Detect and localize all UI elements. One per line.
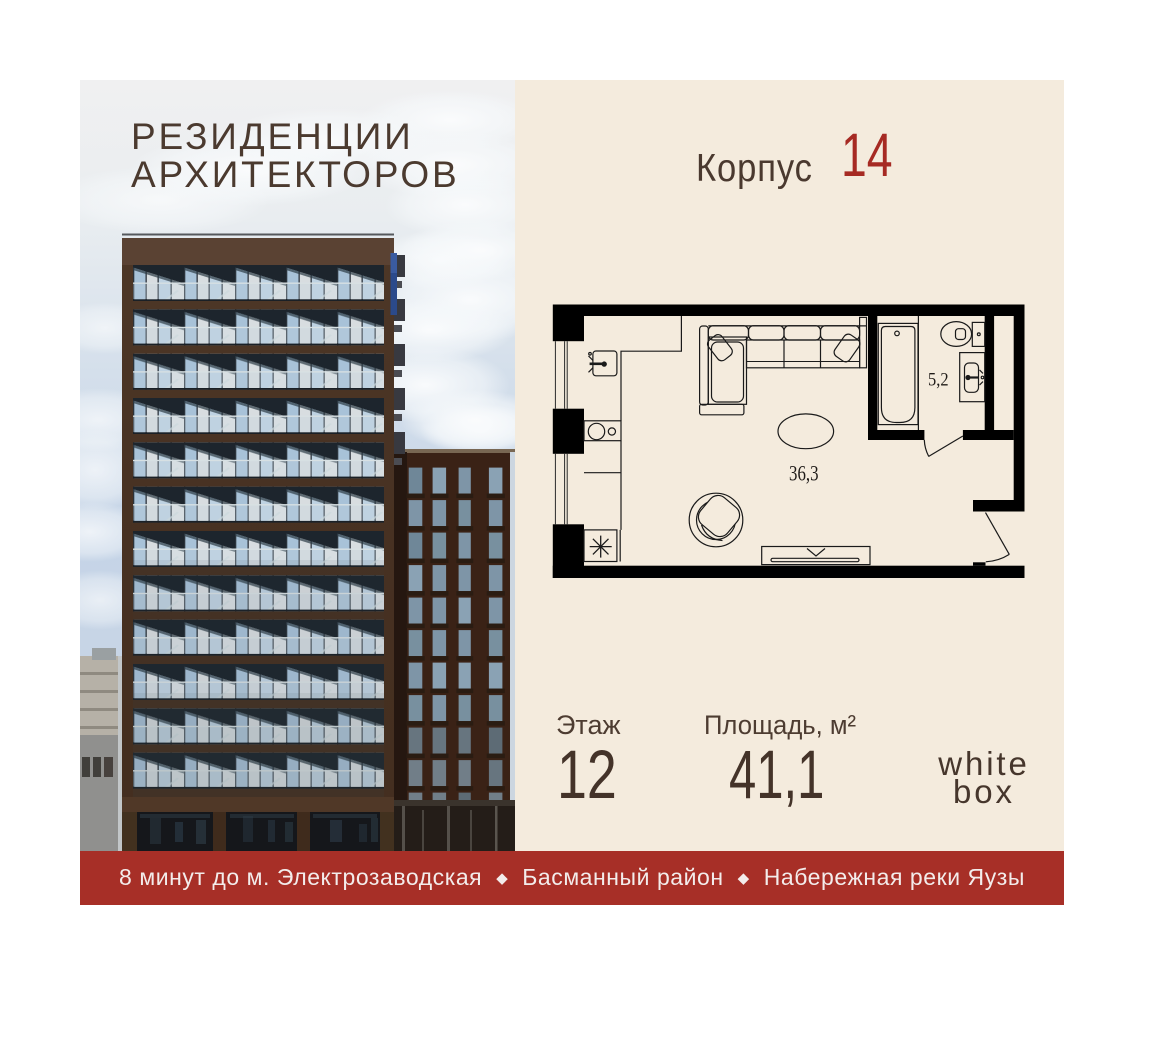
svg-text:36,3: 36,3 xyxy=(789,461,819,486)
svg-text:5,2: 5,2 xyxy=(928,370,949,391)
